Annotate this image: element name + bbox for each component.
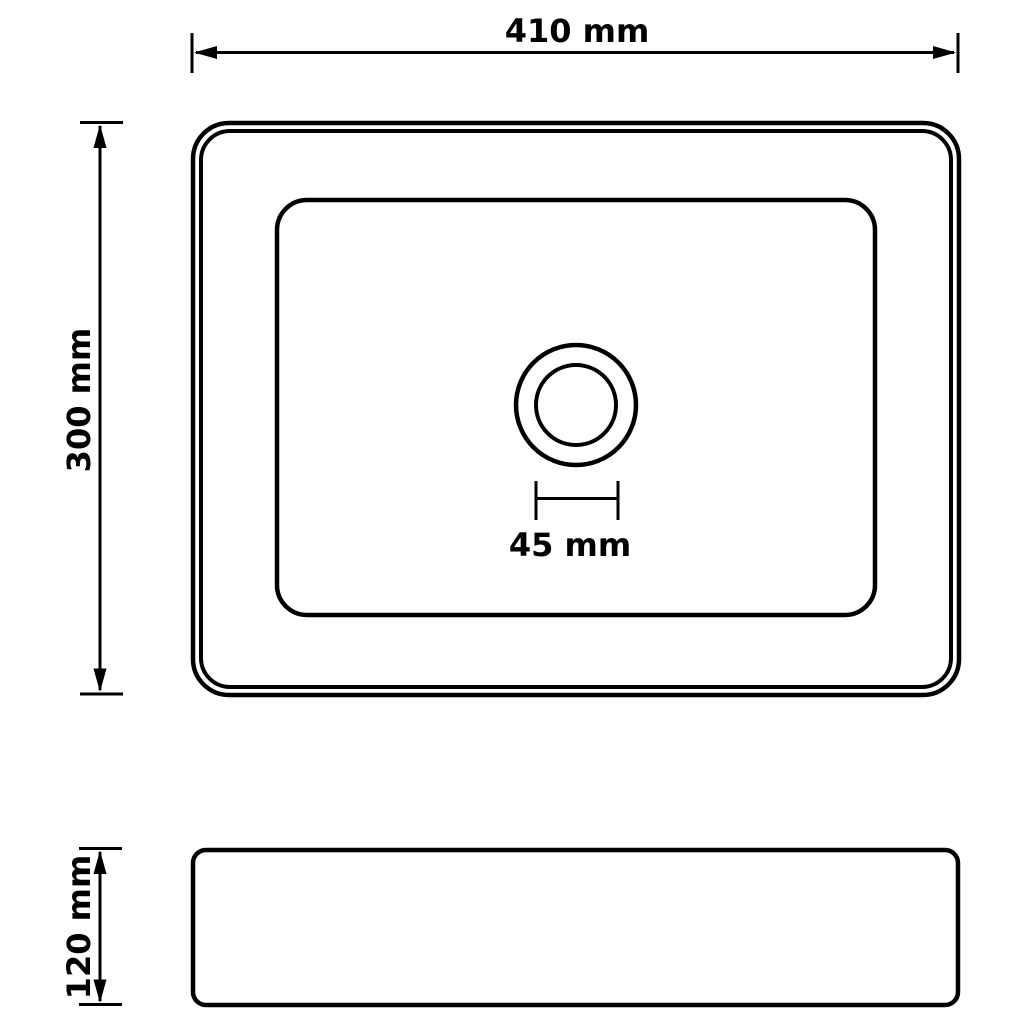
side-view-outline (193, 850, 958, 1005)
width-dimension: 410 mm (192, 12, 958, 73)
height-dimension: 300 mm (60, 123, 123, 695)
width-dimension-label: 410 mm (505, 12, 650, 50)
drain-dimension-label: 45 mm (509, 526, 631, 564)
side-height-dimension-label: 120 mm (60, 855, 98, 1000)
height-dimension-label: 300 mm (60, 328, 98, 473)
height-dimension-arrow-up (94, 125, 107, 149)
drain-dimension: 45 mm (509, 481, 631, 564)
side-view (193, 850, 958, 1005)
side-height-dimension: 120 mm (60, 849, 122, 1005)
height-dimension-arrow-down (94, 669, 107, 693)
width-dimension-arrow-left (194, 46, 217, 59)
width-dimension-arrow-right (933, 46, 956, 59)
drain-inner-circle (536, 365, 616, 445)
top-view (193, 123, 959, 695)
washbasin-dimension-diagram: 410 mm 300 mm 45 mm (0, 0, 1024, 1024)
technical-drawing-page: 410 mm 300 mm 45 mm (0, 0, 1024, 1024)
top-view-rim-inner-edge (201, 131, 951, 687)
top-view-outer-edge (193, 123, 959, 695)
